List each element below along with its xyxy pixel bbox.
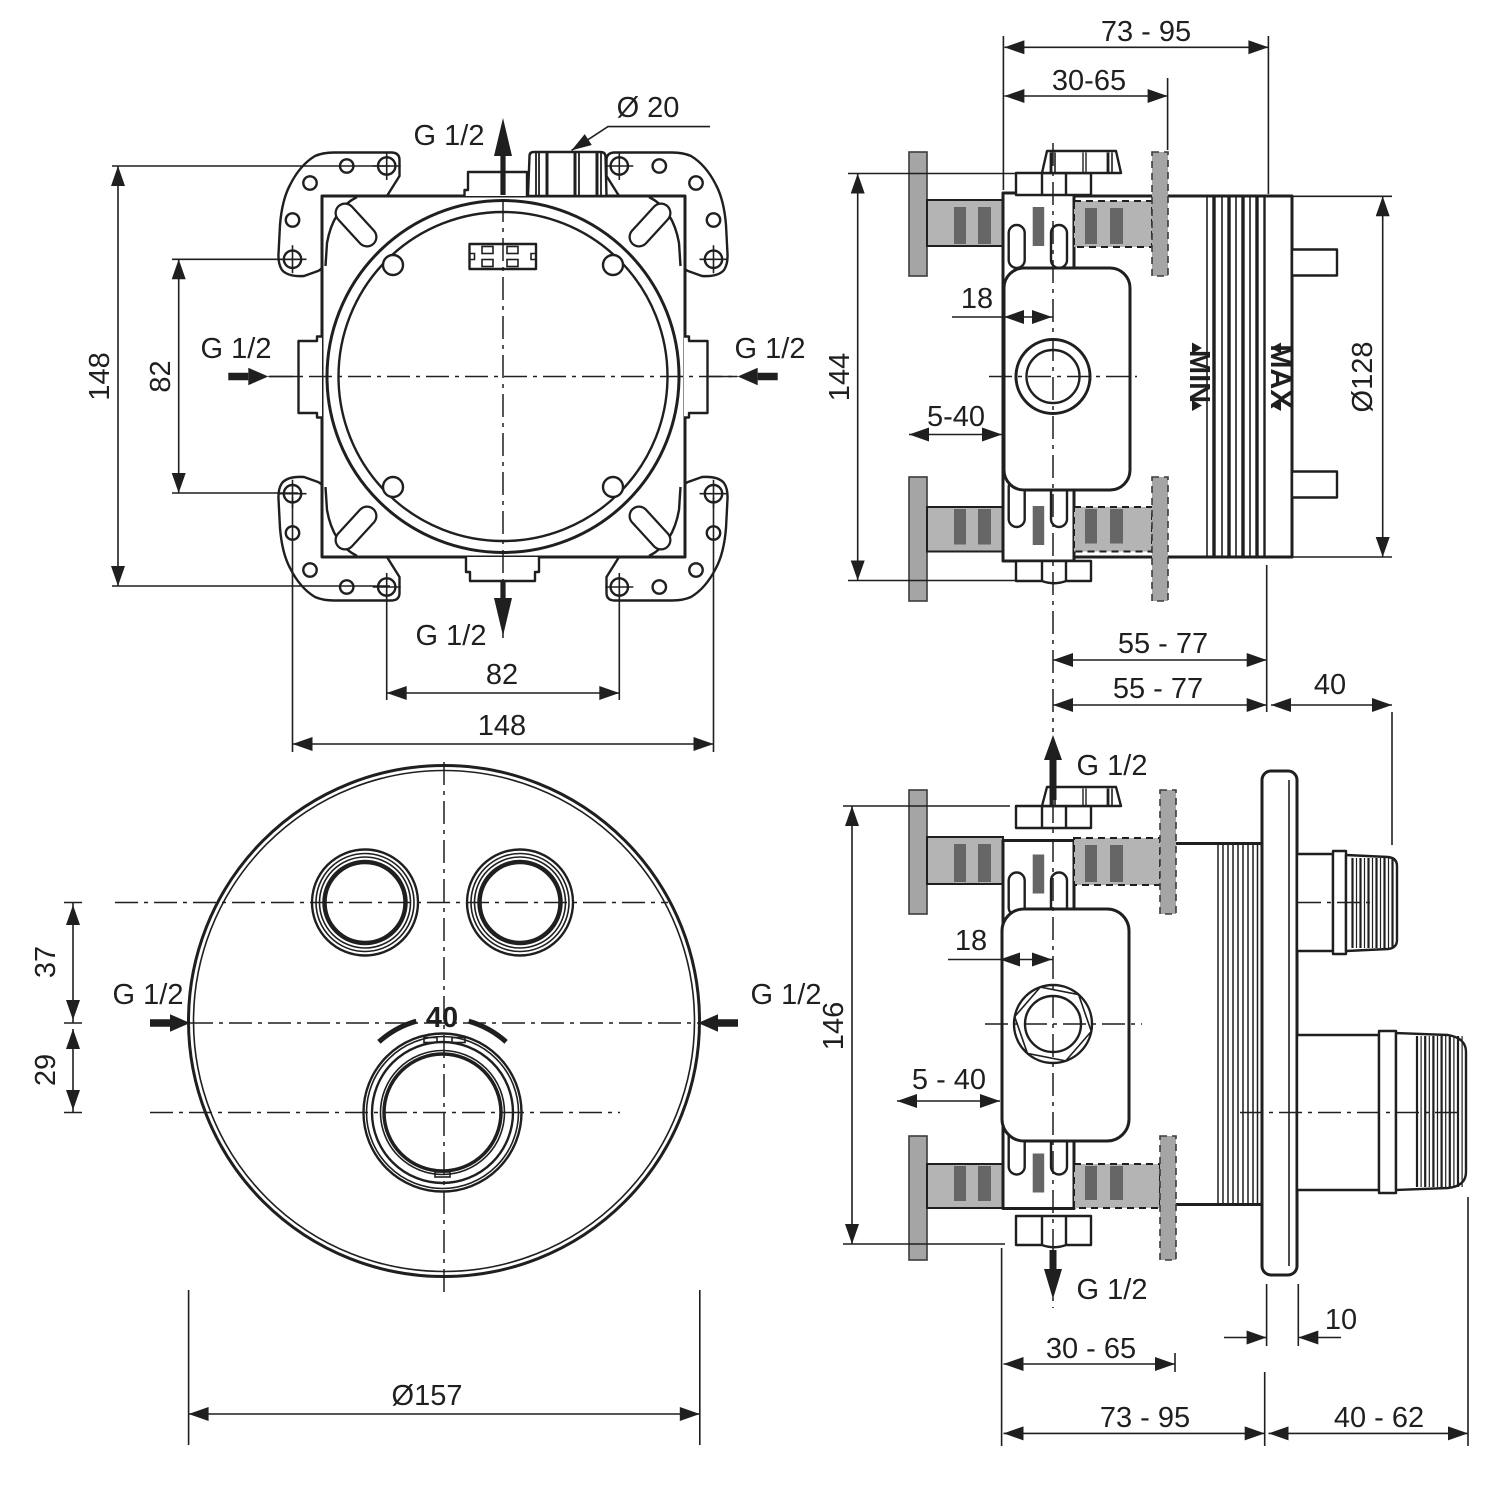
svg-text:G 1/2: G 1/2 [113, 979, 184, 1011]
svg-text:55 - 77: 55 - 77 [1113, 673, 1203, 705]
svg-text:Ø 20: Ø 20 [617, 92, 680, 124]
svg-text:148: 148 [478, 710, 526, 742]
svg-text:5 - 40: 5 - 40 [912, 1064, 986, 1096]
svg-text:18: 18 [961, 283, 993, 315]
svg-text:30 - 65: 30 - 65 [1046, 1333, 1136, 1365]
svg-text:5-40: 5-40 [927, 401, 985, 433]
svg-text:G 1/2: G 1/2 [1077, 1274, 1148, 1306]
svg-text:G 1/2: G 1/2 [1077, 750, 1148, 782]
svg-text:MIN: MIN [1183, 350, 1215, 403]
svg-text:G 1/2: G 1/2 [416, 620, 487, 652]
svg-text:Ø157: Ø157 [392, 1380, 463, 1412]
svg-text:37: 37 [30, 946, 62, 978]
svg-text:40 - 62: 40 - 62 [1334, 1402, 1424, 1434]
svg-text:40: 40 [426, 1002, 458, 1034]
svg-text:G 1/2: G 1/2 [201, 333, 272, 365]
svg-text:G 1/2: G 1/2 [414, 120, 485, 152]
svg-text:Ø128: Ø128 [1347, 342, 1379, 413]
svg-text:G 1/2: G 1/2 [735, 333, 806, 365]
svg-text:29: 29 [30, 1054, 62, 1086]
svg-text:10: 10 [1325, 1304, 1357, 1336]
svg-text:146: 146 [818, 1002, 850, 1050]
svg-text:40: 40 [1314, 669, 1346, 701]
svg-text:MAX: MAX [1264, 344, 1296, 409]
svg-text:73 - 95: 73 - 95 [1100, 1402, 1190, 1434]
svg-text:30-65: 30-65 [1052, 65, 1126, 97]
svg-text:G 1/2: G 1/2 [751, 979, 822, 1011]
svg-text:82: 82 [145, 360, 177, 392]
svg-text:82: 82 [486, 659, 518, 691]
svg-text:18: 18 [955, 925, 987, 957]
svg-text:55 - 77: 55 - 77 [1118, 628, 1208, 660]
svg-text:148: 148 [84, 352, 116, 400]
svg-text:144: 144 [824, 353, 856, 401]
svg-text:73 - 95: 73 - 95 [1101, 16, 1191, 48]
